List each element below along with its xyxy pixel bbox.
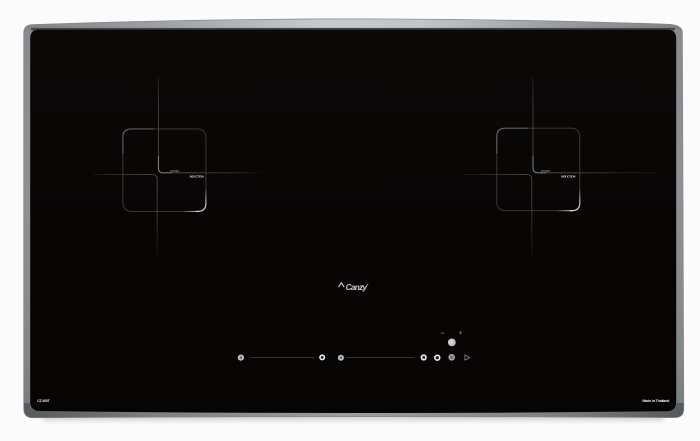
svg-text:Canzy: Canzy — [346, 283, 368, 292]
svg-text:INDUCTION: INDUCTION — [190, 175, 204, 179]
svg-text:CZ 400T: CZ 400T — [37, 399, 50, 403]
svg-text:MASTER: MASTER — [541, 169, 551, 173]
svg-text:INDUCTION: INDUCTION — [561, 175, 575, 179]
svg-text:Made in Thailand: Made in Thailand — [642, 399, 670, 403]
svg-text:MASTER: MASTER — [170, 169, 180, 173]
